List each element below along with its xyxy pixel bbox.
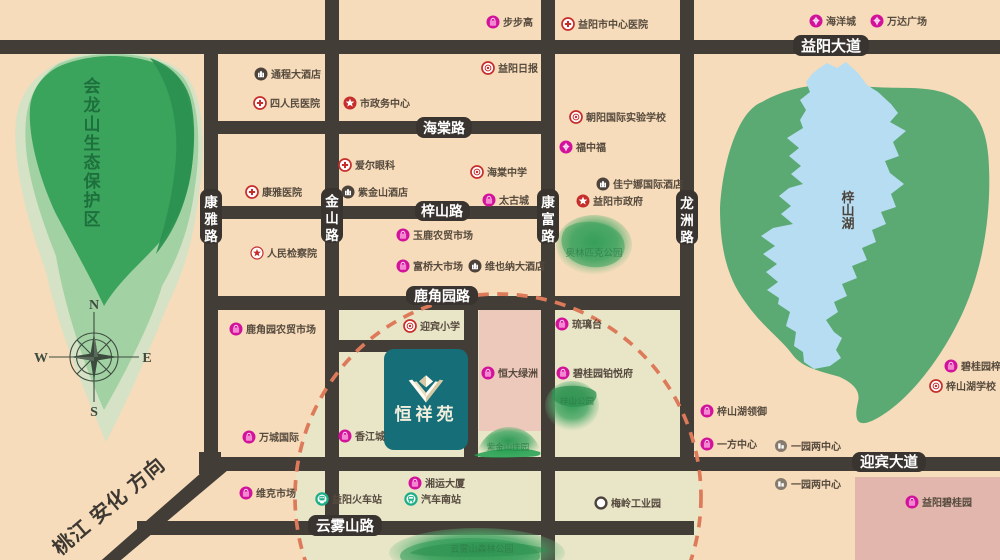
- svg-text:维也纳大酒店: 维也纳大酒店: [485, 260, 545, 273]
- svg-text:梓山湖领御: 梓山湖领御: [717, 405, 767, 418]
- svg-text:四人民医院: 四人民医院: [270, 97, 320, 110]
- svg-text:迎宾小学: 迎宾小学: [420, 320, 460, 333]
- svg-text:步步高: 步步高: [503, 16, 533, 29]
- svg-text:会龙山生态保护区: 会龙山生态保护区: [83, 76, 102, 229]
- svg-text:恒大绿洲: 恒大绿洲: [498, 367, 538, 380]
- svg-text:通程大酒店: 通程大酒店: [271, 68, 321, 81]
- svg-text:康雅路: 康雅路: [204, 194, 218, 244]
- svg-text:益阳大道: 益阳大道: [801, 37, 861, 55]
- svg-text:湘运大厦: 湘运大厦: [425, 477, 466, 490]
- svg-text:海棠中学: 海棠中学: [487, 166, 527, 179]
- svg-text:康富路: 康富路: [541, 194, 555, 244]
- svg-text:人民检察院: 人民检察院: [267, 247, 317, 260]
- svg-text:梓山湖学校: 梓山湖学校: [946, 380, 997, 393]
- svg-text:梅岭工业园: 梅岭工业园: [611, 497, 661, 510]
- svg-text:太古城: 太古城: [498, 194, 529, 207]
- svg-text:琉璃台: 琉璃台: [572, 318, 602, 331]
- svg-text:一方中心: 一方中心: [717, 438, 757, 451]
- svg-text:益阳日报: 益阳日报: [498, 62, 538, 75]
- svg-text:S: S: [90, 405, 98, 420]
- svg-text:汽车南站: 汽车南站: [421, 493, 461, 506]
- svg-text:万达广场: 万达广场: [886, 15, 927, 28]
- svg-text:碧桂园梓山: 碧桂园梓山: [960, 360, 1000, 373]
- svg-text:益阳市中心医院: 益阳市中心医院: [578, 18, 648, 31]
- svg-text:维克市场: 维克市场: [256, 487, 296, 500]
- svg-text:海洋城: 海洋城: [826, 15, 856, 28]
- svg-text:紫金山酒店: 紫金山酒店: [358, 186, 408, 199]
- svg-text:益阳火车站: 益阳火车站: [332, 493, 382, 506]
- svg-text:奥林匹克公园: 奥林匹克公园: [565, 247, 622, 259]
- svg-text:佳宁娜国际酒店: 佳宁娜国际酒店: [613, 178, 683, 191]
- svg-text:益阳市政府: 益阳市政府: [593, 195, 643, 208]
- svg-text:鹿角园路: 鹿角园路: [413, 288, 471, 304]
- svg-text:梓山公园: 梓山公园: [560, 396, 594, 406]
- svg-text:N: N: [89, 298, 99, 313]
- svg-text:海棠路: 海棠路: [423, 120, 466, 136]
- svg-text:香江城: 香江城: [355, 430, 385, 443]
- svg-text:爱尔眼科: 爱尔眼科: [355, 159, 395, 172]
- svg-text:紫金山庄园: 紫金山庄园: [487, 442, 530, 452]
- svg-text:福中福: 福中福: [575, 141, 606, 154]
- svg-text:一园两中心: 一园两中心: [791, 478, 841, 491]
- svg-text:迎宾大道: 迎宾大道: [860, 453, 918, 471]
- svg-text:市政务中心: 市政务中心: [360, 97, 410, 110]
- svg-text:益阳碧桂园: 益阳碧桂园: [922, 496, 972, 509]
- svg-text:云雾山森林公园: 云雾山森林公园: [450, 543, 513, 554]
- svg-text:富桥大市场: 富桥大市场: [413, 260, 463, 273]
- svg-text:玉鹿农贸市场: 玉鹿农贸市场: [413, 229, 473, 242]
- svg-text:龙洲路: 龙洲路: [679, 195, 694, 245]
- svg-text:W: W: [34, 351, 48, 366]
- svg-text:恒祥苑: 恒祥苑: [395, 404, 458, 424]
- svg-text:梓山路: 梓山路: [421, 203, 464, 219]
- svg-text:金山路: 金山路: [324, 193, 339, 243]
- svg-text:朝阳国际实验学校: 朝阳国际实验学校: [586, 111, 667, 124]
- svg-text:康雅医院: 康雅医院: [262, 186, 302, 199]
- svg-text:鹿角园农贸市场: 鹿角园农贸市场: [246, 323, 316, 336]
- svg-text:梓山湖: 梓山湖: [841, 190, 854, 231]
- svg-text:云雾山路: 云雾山路: [316, 517, 374, 535]
- svg-text:碧桂园铂悦府: 碧桂园铂悦府: [572, 367, 633, 380]
- svg-text:一园两中心: 一园两中心: [791, 440, 841, 453]
- svg-text:E: E: [142, 351, 151, 366]
- svg-text:万城国际: 万城国际: [258, 431, 299, 444]
